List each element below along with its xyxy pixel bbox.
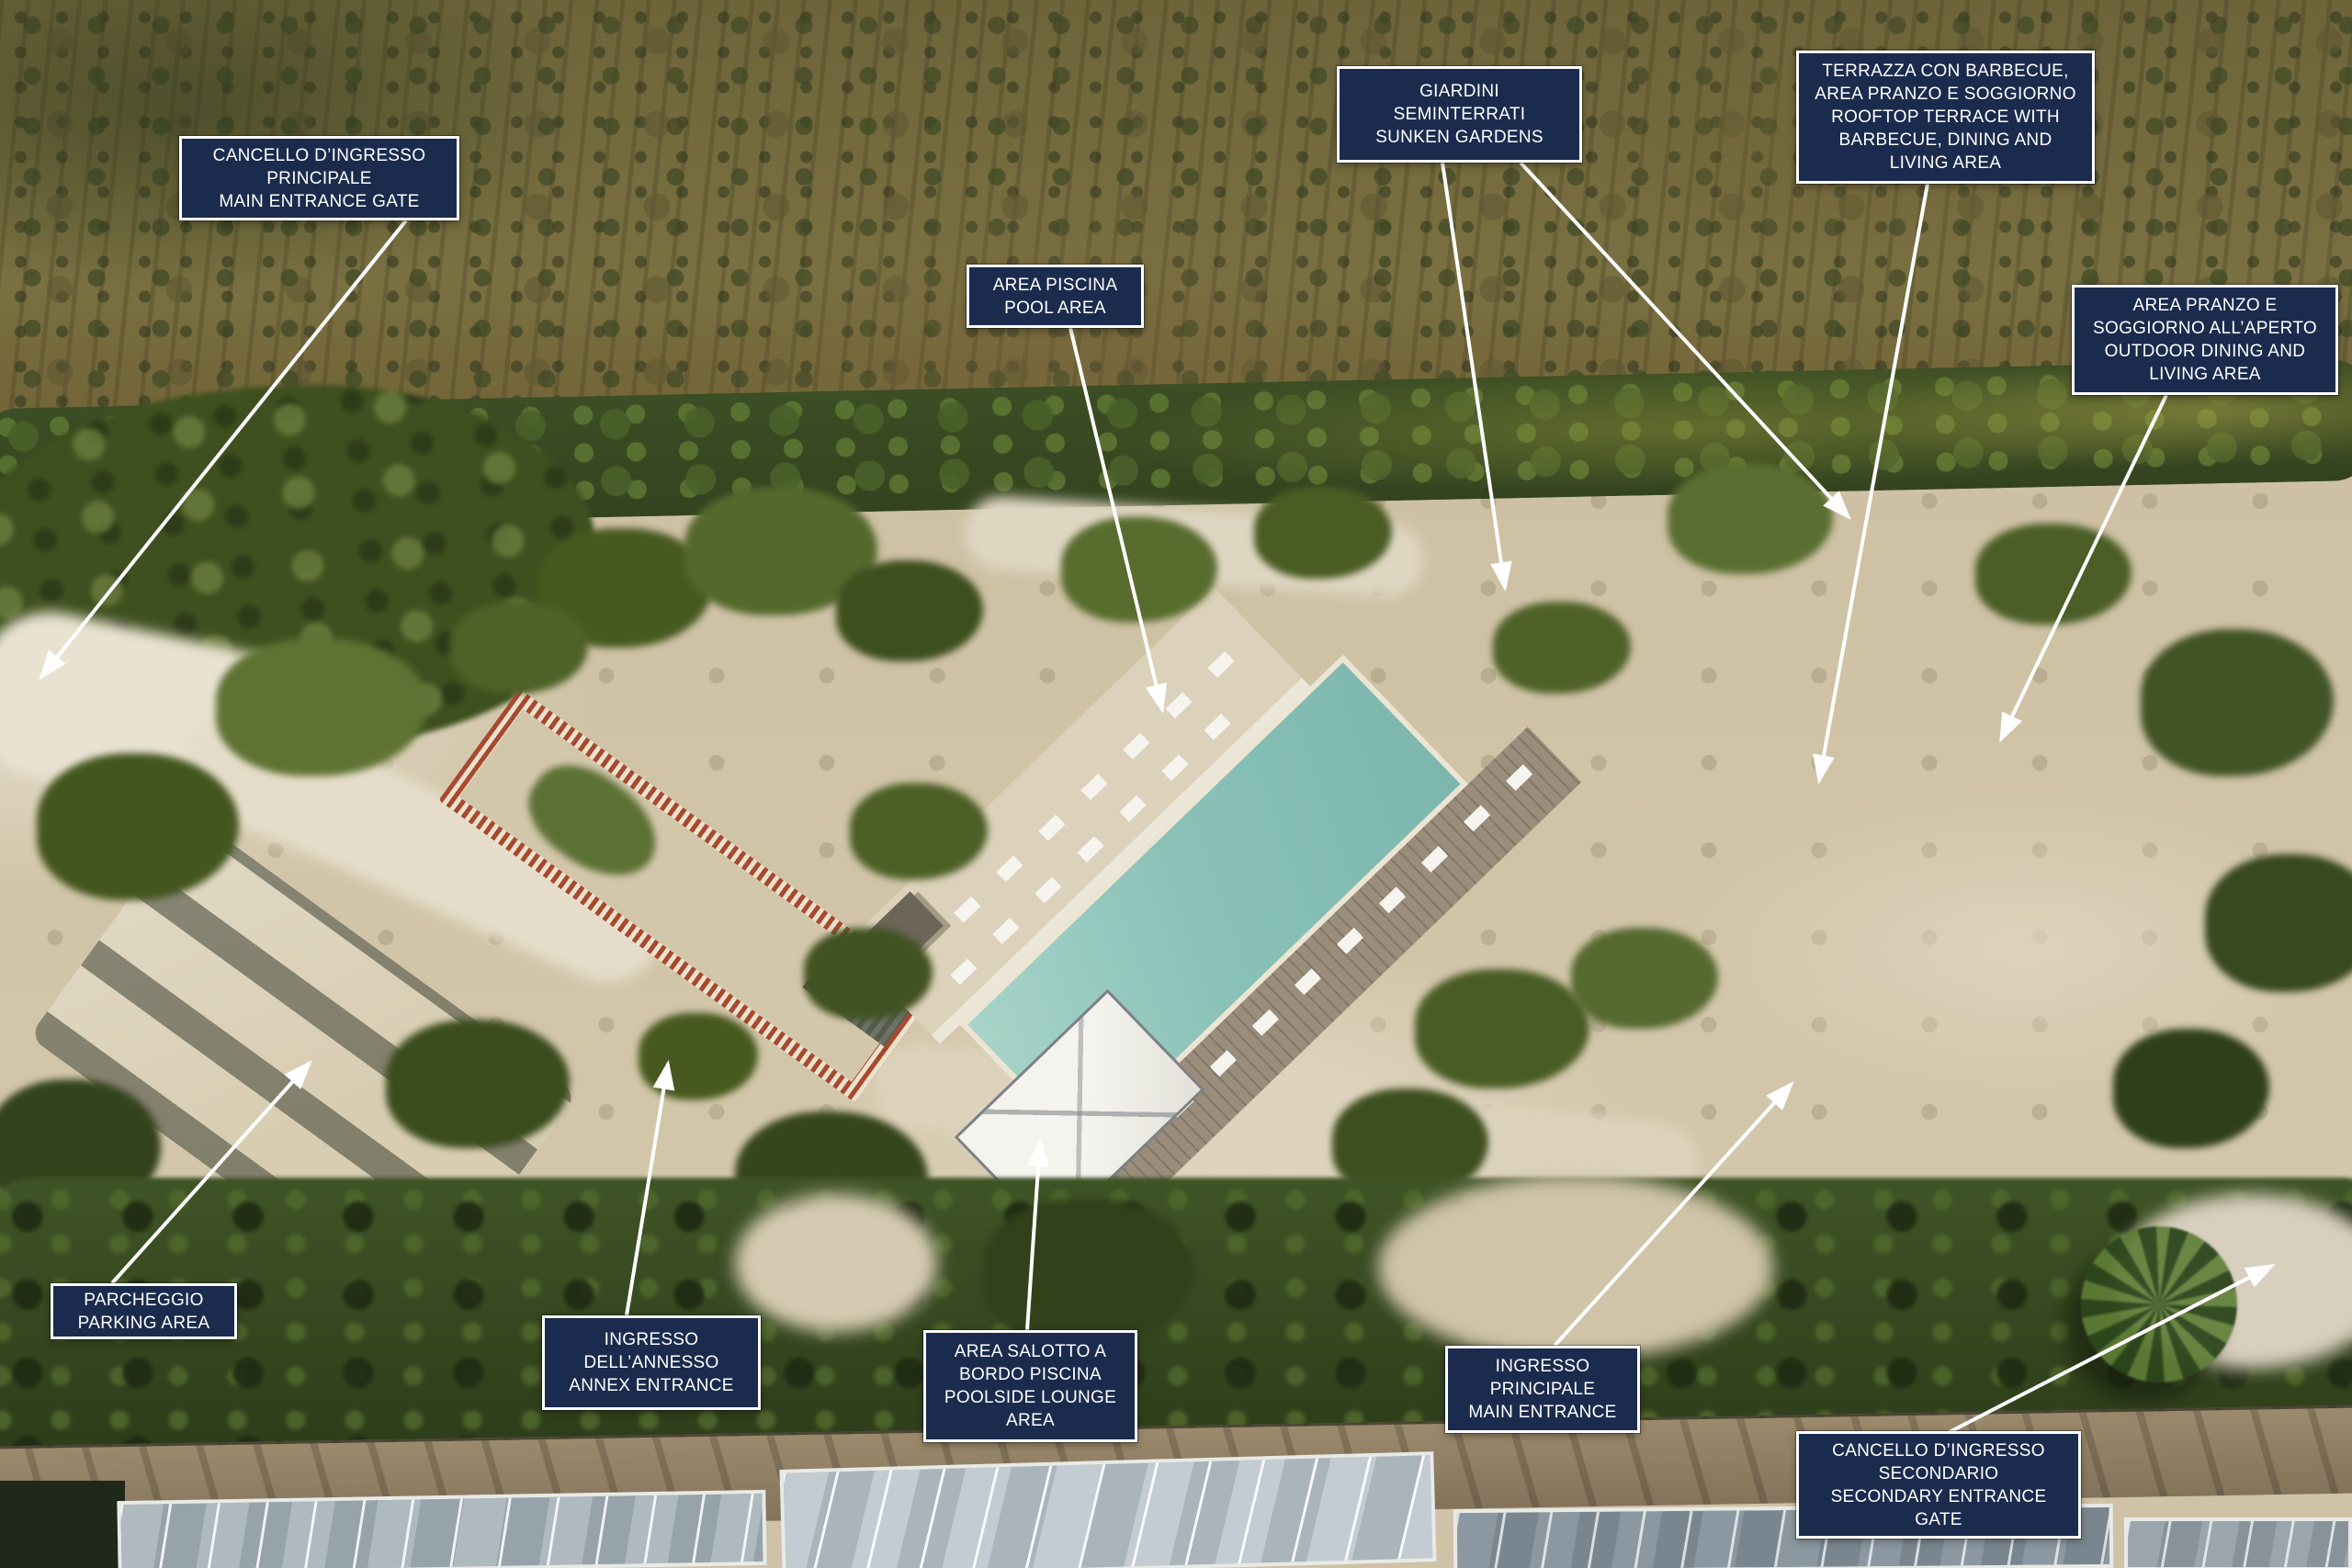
annotation-pool-area: AREA PISCINA POOL AREA (967, 265, 1144, 328)
dark-field-corner (0, 1481, 125, 1568)
greenhouse-2 (779, 1451, 1436, 1568)
clearing-main-entrance (1378, 1176, 1773, 1359)
greenhouse-4 (2124, 1517, 2352, 1568)
annotation-annex-entrance: INGRESSO DELL’ANNESSO ANNEX ENTRANCE (542, 1315, 761, 1410)
annotation-sunken-gardens: GIARDINI SEMINTERRATI SUNKEN GARDENS (1337, 66, 1582, 163)
annotation-main-entrance-gate: CANCELLO D’INGRESSO PRINCIPALE MAIN ENTR… (179, 136, 459, 220)
clearing-annex-path (735, 1194, 937, 1332)
greenhouse-1 (117, 1490, 766, 1568)
palm-tree (2081, 1226, 2237, 1382)
tree-canopy (2205, 854, 2352, 992)
annotation-poolside-lounge: AREA SALOTTO A BORDO PISCINA POOLSIDE LO… (923, 1330, 1137, 1442)
annotation-secondary-entrance-gate: CANCELLO D’INGRESSO SECONDARIO SECONDARY… (1796, 1431, 2081, 1539)
annotation-rooftop-terrace: TERRAZZA CON BARBECUE, AREA PRANZO E SOG… (1796, 51, 2095, 184)
annotation-outdoor-dining: AREA PRANZO E SOGGIORNO ALL’APERTO OUTDO… (2072, 285, 2338, 395)
aerial-photo: CANCELLO D’INGRESSO PRINCIPALE MAIN ENTR… (0, 0, 2352, 1568)
annotation-main-entrance: INGRESSO PRINCIPALE MAIN ENTRANCE (1445, 1346, 1640, 1433)
annotation-parking-area: PARCHEGGIO PARKING AREA (51, 1283, 237, 1339)
